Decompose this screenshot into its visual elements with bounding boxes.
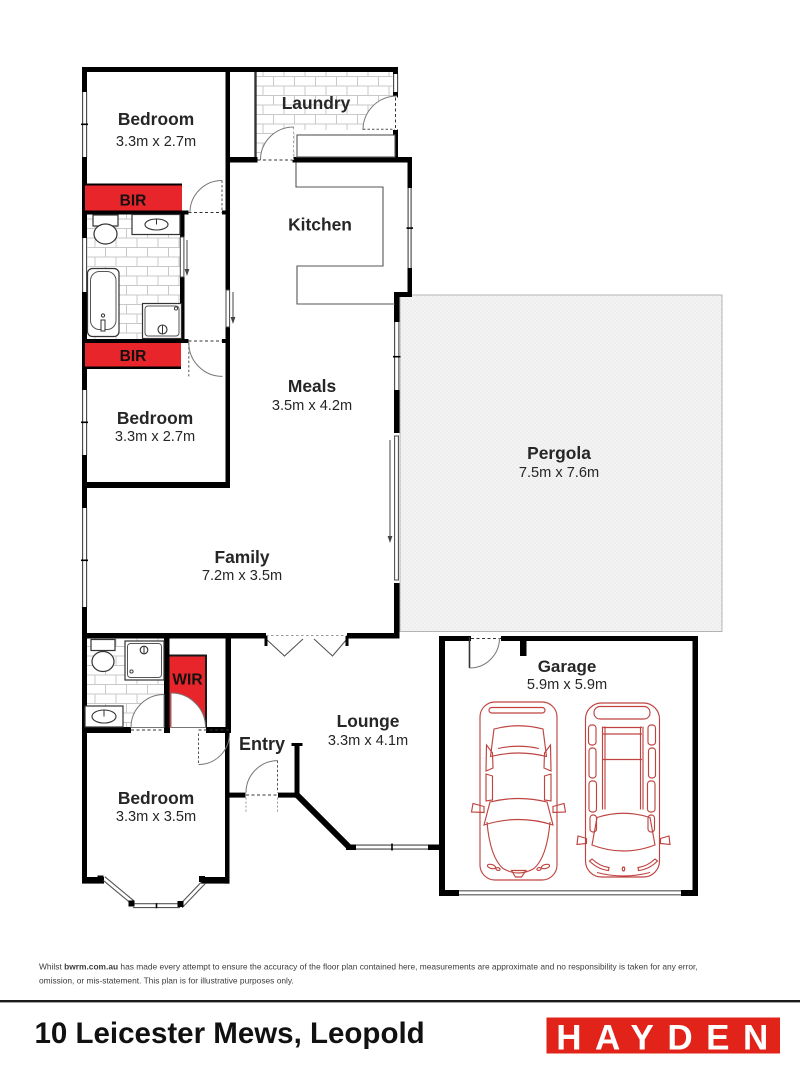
- svg-text:Kitchen: Kitchen: [288, 215, 352, 235]
- svg-text:Whilst bwrm.com.au has made ev: Whilst bwrm.com.au has made every attemp…: [39, 962, 698, 972]
- svg-text:BIR: BIR: [120, 193, 147, 210]
- svg-text:Lounge: Lounge: [337, 711, 400, 731]
- svg-text:Bedroom: Bedroom: [117, 408, 193, 428]
- svg-text:3.3m x 2.7m: 3.3m x 2.7m: [115, 429, 195, 445]
- svg-text:BIR: BIR: [120, 348, 147, 365]
- svg-text:omission, or mis-statement. Th: omission, or mis-statement. This plan is…: [39, 976, 294, 986]
- svg-text:WIR: WIR: [172, 672, 202, 689]
- svg-text:Family: Family: [214, 547, 269, 567]
- svg-text:HAYDEN: HAYDEN: [556, 1019, 782, 1058]
- svg-text:Garage: Garage: [538, 657, 597, 676]
- svg-text:3.5m x 4.2m: 3.5m x 4.2m: [272, 398, 352, 414]
- svg-text:Laundry: Laundry: [282, 93, 351, 113]
- svg-text:Entry: Entry: [239, 734, 285, 754]
- svg-text:5.9m x 5.9m: 5.9m x 5.9m: [527, 677, 607, 693]
- svg-text:Bedroom: Bedroom: [118, 788, 194, 808]
- svg-text:10 Leicester Mews, Leopold: 10 Leicester Mews, Leopold: [35, 1017, 425, 1050]
- svg-text:7.5m x 7.6m: 7.5m x 7.6m: [519, 465, 599, 481]
- svg-text:Bedroom: Bedroom: [118, 109, 194, 129]
- svg-text:3.3m x 2.7m: 3.3m x 2.7m: [116, 134, 196, 150]
- svg-text:3.3m x 4.1m: 3.3m x 4.1m: [328, 733, 408, 749]
- svg-text:7.2m x 3.5m: 7.2m x 3.5m: [202, 568, 282, 584]
- svg-text:Meals: Meals: [288, 376, 336, 396]
- svg-text:3.3m x 3.5m: 3.3m x 3.5m: [116, 809, 196, 825]
- svg-text:Pergola: Pergola: [527, 443, 591, 463]
